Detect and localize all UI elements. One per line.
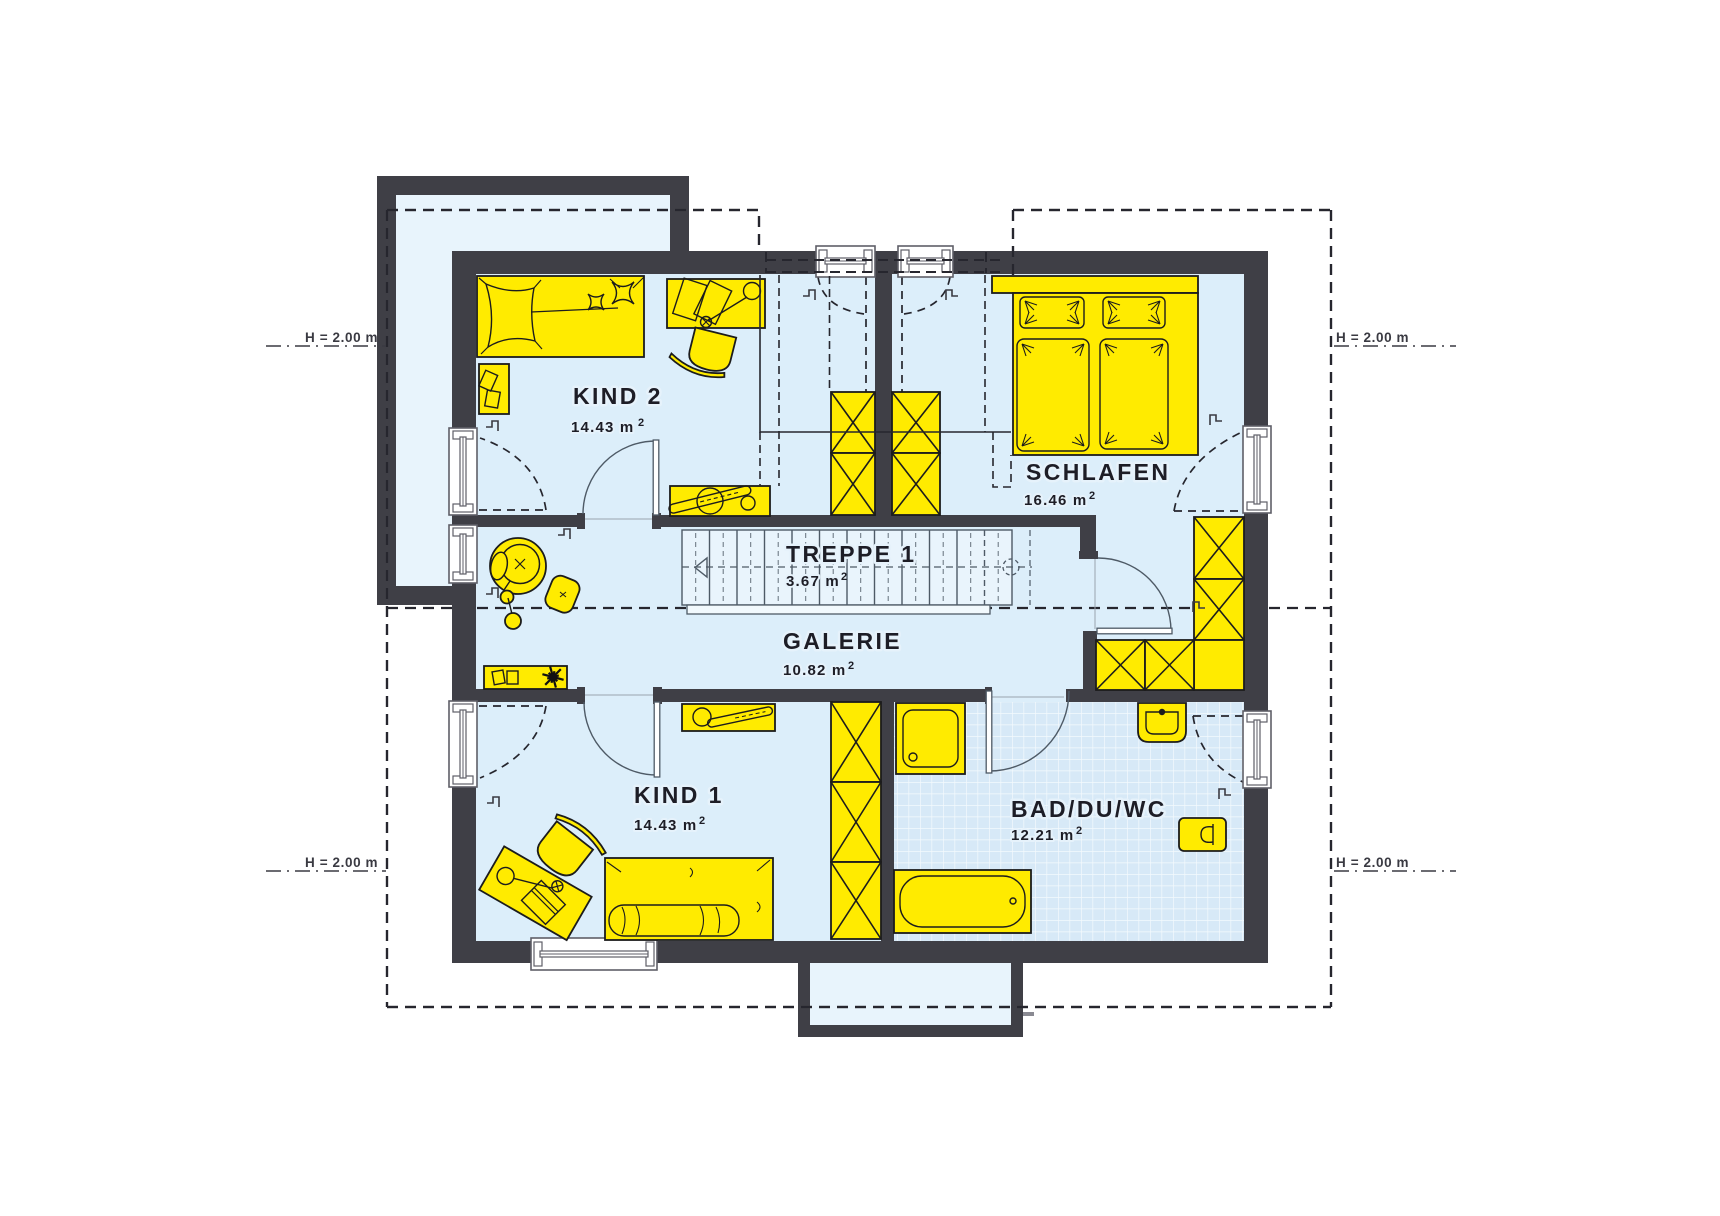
svg-text:H = 2.00 m: H = 2.00 m — [1336, 855, 1409, 870]
svg-text:12.21 m: 12.21 m — [1011, 827, 1074, 844]
svg-text:2: 2 — [1089, 490, 1095, 502]
svg-text:GALERIE: GALERIE — [783, 628, 902, 654]
svg-text:2: 2 — [638, 417, 644, 429]
svg-text:H = 2.00 m: H = 2.00 m — [305, 330, 378, 345]
svg-text:14.43 m: 14.43 m — [571, 419, 634, 436]
svg-text:2: 2 — [848, 660, 854, 672]
svg-text:14.43 m: 14.43 m — [634, 817, 697, 834]
svg-text:10.82 m: 10.82 m — [783, 662, 846, 679]
svg-text:H = 2.00 m: H = 2.00 m — [305, 855, 378, 870]
svg-text:2: 2 — [841, 571, 847, 583]
svg-text:TREPPE 1: TREPPE 1 — [786, 541, 916, 567]
svg-text:H = 2.00 m: H = 2.00 m — [1336, 330, 1409, 345]
svg-text:SCHLAFEN: SCHLAFEN — [1026, 459, 1170, 485]
svg-text:BAD/DU/WC: BAD/DU/WC — [1011, 796, 1167, 822]
svg-text:2: 2 — [1076, 825, 1082, 837]
svg-text:2: 2 — [699, 815, 705, 827]
svg-text:16.46 m: 16.46 m — [1024, 492, 1087, 509]
svg-text:3.67 m: 3.67 m — [786, 573, 840, 590]
svg-text:KIND 2: KIND 2 — [573, 383, 663, 409]
svg-text:KIND 1: KIND 1 — [634, 782, 724, 808]
